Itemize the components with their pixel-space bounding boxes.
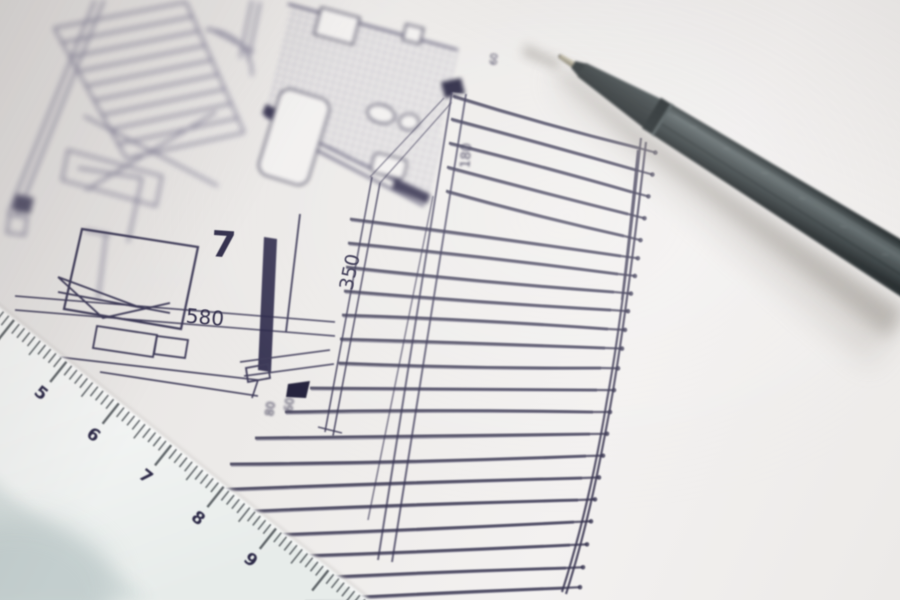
deck-stroke-end-dot [578,585,583,590]
dim-80-label: 80 [262,401,278,417]
stair-tread [62,17,193,43]
fineliner-pen [546,34,900,303]
thin-wall-line [286,214,300,332]
hall-wall [240,0,260,60]
deck-stroke-echo [450,145,632,193]
bathtub [256,86,332,187]
stair-tread [94,75,219,101]
wall-poche [12,194,34,214]
deck-stroke-stub [563,587,580,588]
deck-stroke-end-dot [589,519,594,524]
deck-stroke-end-dot [636,256,641,261]
scene-svg: 7 580 350 180 80 60 60 [0,0,900,600]
deck-stroke [446,191,624,236]
deck-stroke-echo [448,169,628,215]
room-number-label: 7 [209,224,237,267]
deck-stroke-end-dot [642,216,647,221]
deck-stroke-stub [621,256,638,258]
deck-stroke-end-dot [593,497,598,502]
toilet-tank [402,24,423,44]
door-leaf [208,28,254,52]
deck-stroke [344,291,611,310]
deck-stroke [346,267,614,292]
stair-tread [54,2,186,28]
deck-stroke-echo [343,317,608,330]
stair-cross [84,112,218,190]
deck-stroke [338,363,601,368]
decking-right-edge [562,138,646,594]
deck-stroke-stub [624,236,640,240]
deck-stroke [340,339,605,348]
pen-tip-shadow [519,40,563,75]
dim-60-top-label: 60 [488,53,500,66]
sill-lines [240,350,334,376]
ruler: 456789 [0,290,372,600]
dim-580-label: 580 [185,304,225,331]
deck-stroke-end-dot [581,565,586,570]
stair-tread [118,118,238,144]
stair-tread [86,60,212,86]
wall-nib [7,215,27,235]
threshold-poche [286,381,310,398]
bathroom [256,4,465,206]
deck-stroke-end-dot [585,542,590,547]
deck-stroke-end-dot [638,238,643,243]
deck-stroke [447,167,628,214]
dimension-line-350 [318,177,380,436]
deck-stroke-stub [570,544,587,545]
deck-stroke-end-dot [646,194,651,199]
stair-tread [78,46,206,72]
stair-landing [62,150,162,206]
deck-stroke-end-dot [629,291,634,296]
stair-tread [102,89,225,115]
pen-needle-tip [558,53,575,67]
deck-stroke-end-dot [633,274,638,279]
bedside-steps [93,326,188,358]
photo-canvas: 7 580 350 180 80 60 60 [0,0,900,600]
bed [64,229,198,329]
wall-poche-bar [258,237,277,372]
stair-tread [110,104,232,130]
